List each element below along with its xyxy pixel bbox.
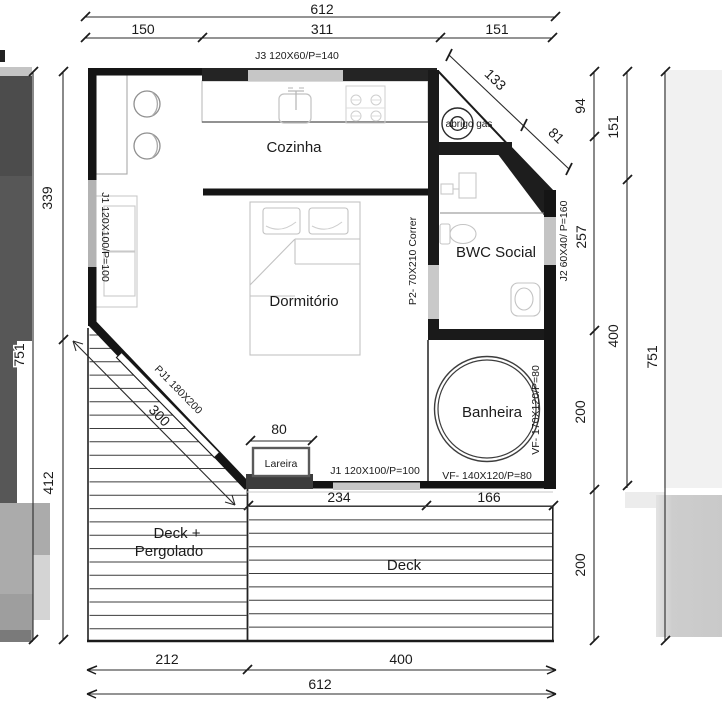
svg-text:166: 166	[477, 489, 501, 505]
svg-text:212: 212	[155, 651, 179, 667]
svg-text:400: 400	[605, 324, 621, 348]
svg-text:151: 151	[605, 115, 621, 139]
svg-text:257: 257	[573, 225, 589, 249]
svg-text:200: 200	[572, 553, 588, 577]
svg-text:80: 80	[271, 421, 287, 437]
svg-text:VF- 140X120/P=80: VF- 140X120/P=80	[442, 470, 532, 482]
svg-text:BWC Social: BWC Social	[456, 244, 536, 261]
svg-text:612: 612	[308, 676, 332, 692]
svg-text:612: 612	[310, 1, 334, 17]
svg-text:Cozinha: Cozinha	[266, 139, 322, 156]
svg-text:412: 412	[40, 471, 56, 495]
svg-text:VF- 170X120/P=80: VF- 170X120/P=80	[530, 365, 542, 455]
svg-text:Dormitório: Dormitório	[269, 293, 338, 310]
svg-text:150: 150	[131, 21, 155, 37]
svg-text:Banheira: Banheira	[462, 404, 523, 421]
svg-text:151: 151	[485, 21, 509, 37]
svg-text:Pergolado: Pergolado	[135, 543, 203, 560]
svg-text:94: 94	[572, 98, 588, 114]
svg-text:J1 120X100/P=100: J1 120X100/P=100	[330, 465, 420, 477]
svg-text:Deck +: Deck +	[153, 525, 200, 542]
svg-text:abrigo gás: abrigo gás	[446, 119, 493, 130]
svg-text:J3 120X60/P=140: J3 120X60/P=140	[255, 50, 339, 62]
svg-text:339: 339	[39, 186, 55, 210]
svg-text:P2- 70X210 Correr: P2- 70X210 Correr	[407, 216, 419, 305]
svg-text:Lareira: Lareira	[265, 458, 298, 470]
svg-text:311: 311	[311, 21, 334, 37]
svg-text:234: 234	[327, 489, 351, 505]
svg-text:751: 751	[644, 345, 660, 369]
svg-text:400: 400	[389, 651, 413, 667]
svg-text:751: 751	[11, 343, 27, 367]
svg-text:J1 120X100/P=100: J1 120X100/P=100	[99, 192, 111, 282]
svg-text:J2 60X40/ P=160: J2 60X40/ P=160	[558, 200, 570, 281]
svg-text:200: 200	[572, 400, 588, 424]
svg-text:Deck: Deck	[387, 557, 422, 574]
